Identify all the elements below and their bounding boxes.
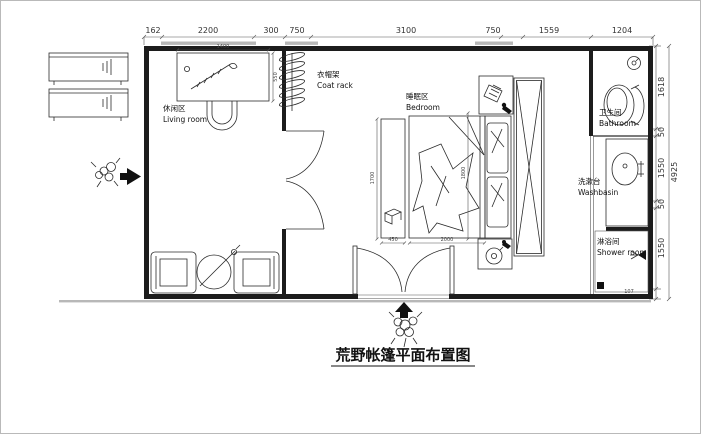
shower-label-zh: 淋浴间 — [597, 236, 620, 246]
dim-desk-width: 1400 — [217, 44, 230, 50]
drawing-title: 荒野帐篷平面布置图 — [331, 346, 475, 366]
entrance-double-door — [353, 246, 454, 299]
dim-bench-width: 450 — [388, 237, 398, 243]
bathroom-label-en: Bathroom — [599, 119, 636, 128]
bathroom: 卫生间 Bathroom — [599, 57, 644, 129]
nightstand-bottom — [478, 239, 512, 269]
dim-top-6: 750 — [485, 26, 500, 35]
dim-bed-width: 2000 — [441, 237, 454, 243]
floor-plan-canvas: 162 2200 300 750 3100 750 1559 1204 1618… — [0, 0, 701, 434]
window-bar-2 — [285, 42, 318, 45]
dim-desk-depth: 550 — [273, 72, 279, 82]
dim-right-5: 1550 — [657, 238, 666, 258]
ground-shadow-line — [59, 300, 651, 302]
washbasin-label-zh: 洗漱台 — [578, 176, 601, 186]
bottom-entrance-marker — [389, 302, 422, 347]
bench — [381, 119, 405, 238]
bed-headboard-pillows — [485, 116, 511, 238]
washbasin-area: 洗漱台 Washbasin — [578, 139, 648, 226]
curtain-doorway — [286, 131, 324, 229]
bed — [409, 116, 485, 238]
floor-plan-drawing: 162 2200 300 750 3100 750 1559 1204 1618… — [1, 1, 700, 433]
dim-top-3: 300 — [263, 26, 278, 35]
coat-rack-label-en: Coat rack — [317, 81, 354, 90]
dim-top-4: 750 — [289, 26, 304, 35]
desk-chair — [207, 101, 237, 130]
bedroom-label-en: Bedroom — [406, 103, 440, 112]
coat-rack: 衣帽架 Coat rack — [279, 51, 354, 111]
window-bar-3 — [475, 42, 513, 45]
armchair-right — [234, 252, 279, 293]
shower-room: 淋浴间 Shower room — [595, 231, 648, 292]
round-table — [197, 245, 240, 289]
entrance-arrow-tail — [120, 173, 127, 180]
dim-top-1: 162 — [145, 26, 160, 35]
dim-top-7: 1559 — [539, 26, 559, 35]
bed-dimensions: 450 1700 2000 1800 — [370, 112, 486, 245]
dim-right-1: 1618 — [657, 77, 666, 97]
dim-top-2: 2200 — [198, 26, 218, 35]
coat-rack-label-zh: 衣帽架 — [317, 69, 340, 79]
armchair-left — [151, 252, 196, 293]
left-entrance-marker — [91, 158, 141, 187]
living-room-label-zh: 休闲区 — [163, 103, 186, 113]
dim-bench-length: 1700 — [370, 172, 376, 185]
dim-right-4: 50 — [657, 199, 666, 209]
desk — [177, 53, 269, 101]
wardrobe-cabinet — [514, 78, 544, 256]
lounge-chair-2 — [49, 89, 128, 121]
walls — [144, 42, 653, 300]
bathroom-label-zh: 卫生间 — [599, 107, 622, 117]
washbasin-counter — [606, 139, 648, 226]
lounge-chair-1 — [49, 53, 128, 85]
entrance-arrow-up-icon — [395, 302, 413, 312]
floor-drain-icon — [597, 282, 604, 289]
dim-top-5: 3100 — [396, 26, 416, 35]
bedroom: 睡眠区 Bedroom — [370, 76, 544, 269]
washbasin-label-en: Washbasin — [578, 188, 619, 197]
bedroom-label-zh: 睡眠区 — [406, 92, 429, 101]
window-bar-1 — [161, 42, 256, 45]
exhaust-fan-icon — [628, 57, 641, 70]
living-room-label-en: Living room — [163, 115, 207, 124]
nightstand-top — [479, 76, 513, 114]
living-room: 1400 550 休闲区 Living room — [151, 44, 279, 293]
dim-right-3: 1550 — [657, 158, 666, 178]
dim-right-total: 4925 — [670, 162, 679, 182]
dim-bed-length: 1800 — [461, 167, 467, 180]
dim-right-2: 50 — [657, 127, 666, 137]
dim-top-8: 1204 — [612, 26, 632, 35]
title-text: 荒野帐篷平面布置图 — [335, 346, 470, 364]
plant-icon — [91, 158, 120, 187]
entrance-arrow-icon — [127, 168, 141, 185]
